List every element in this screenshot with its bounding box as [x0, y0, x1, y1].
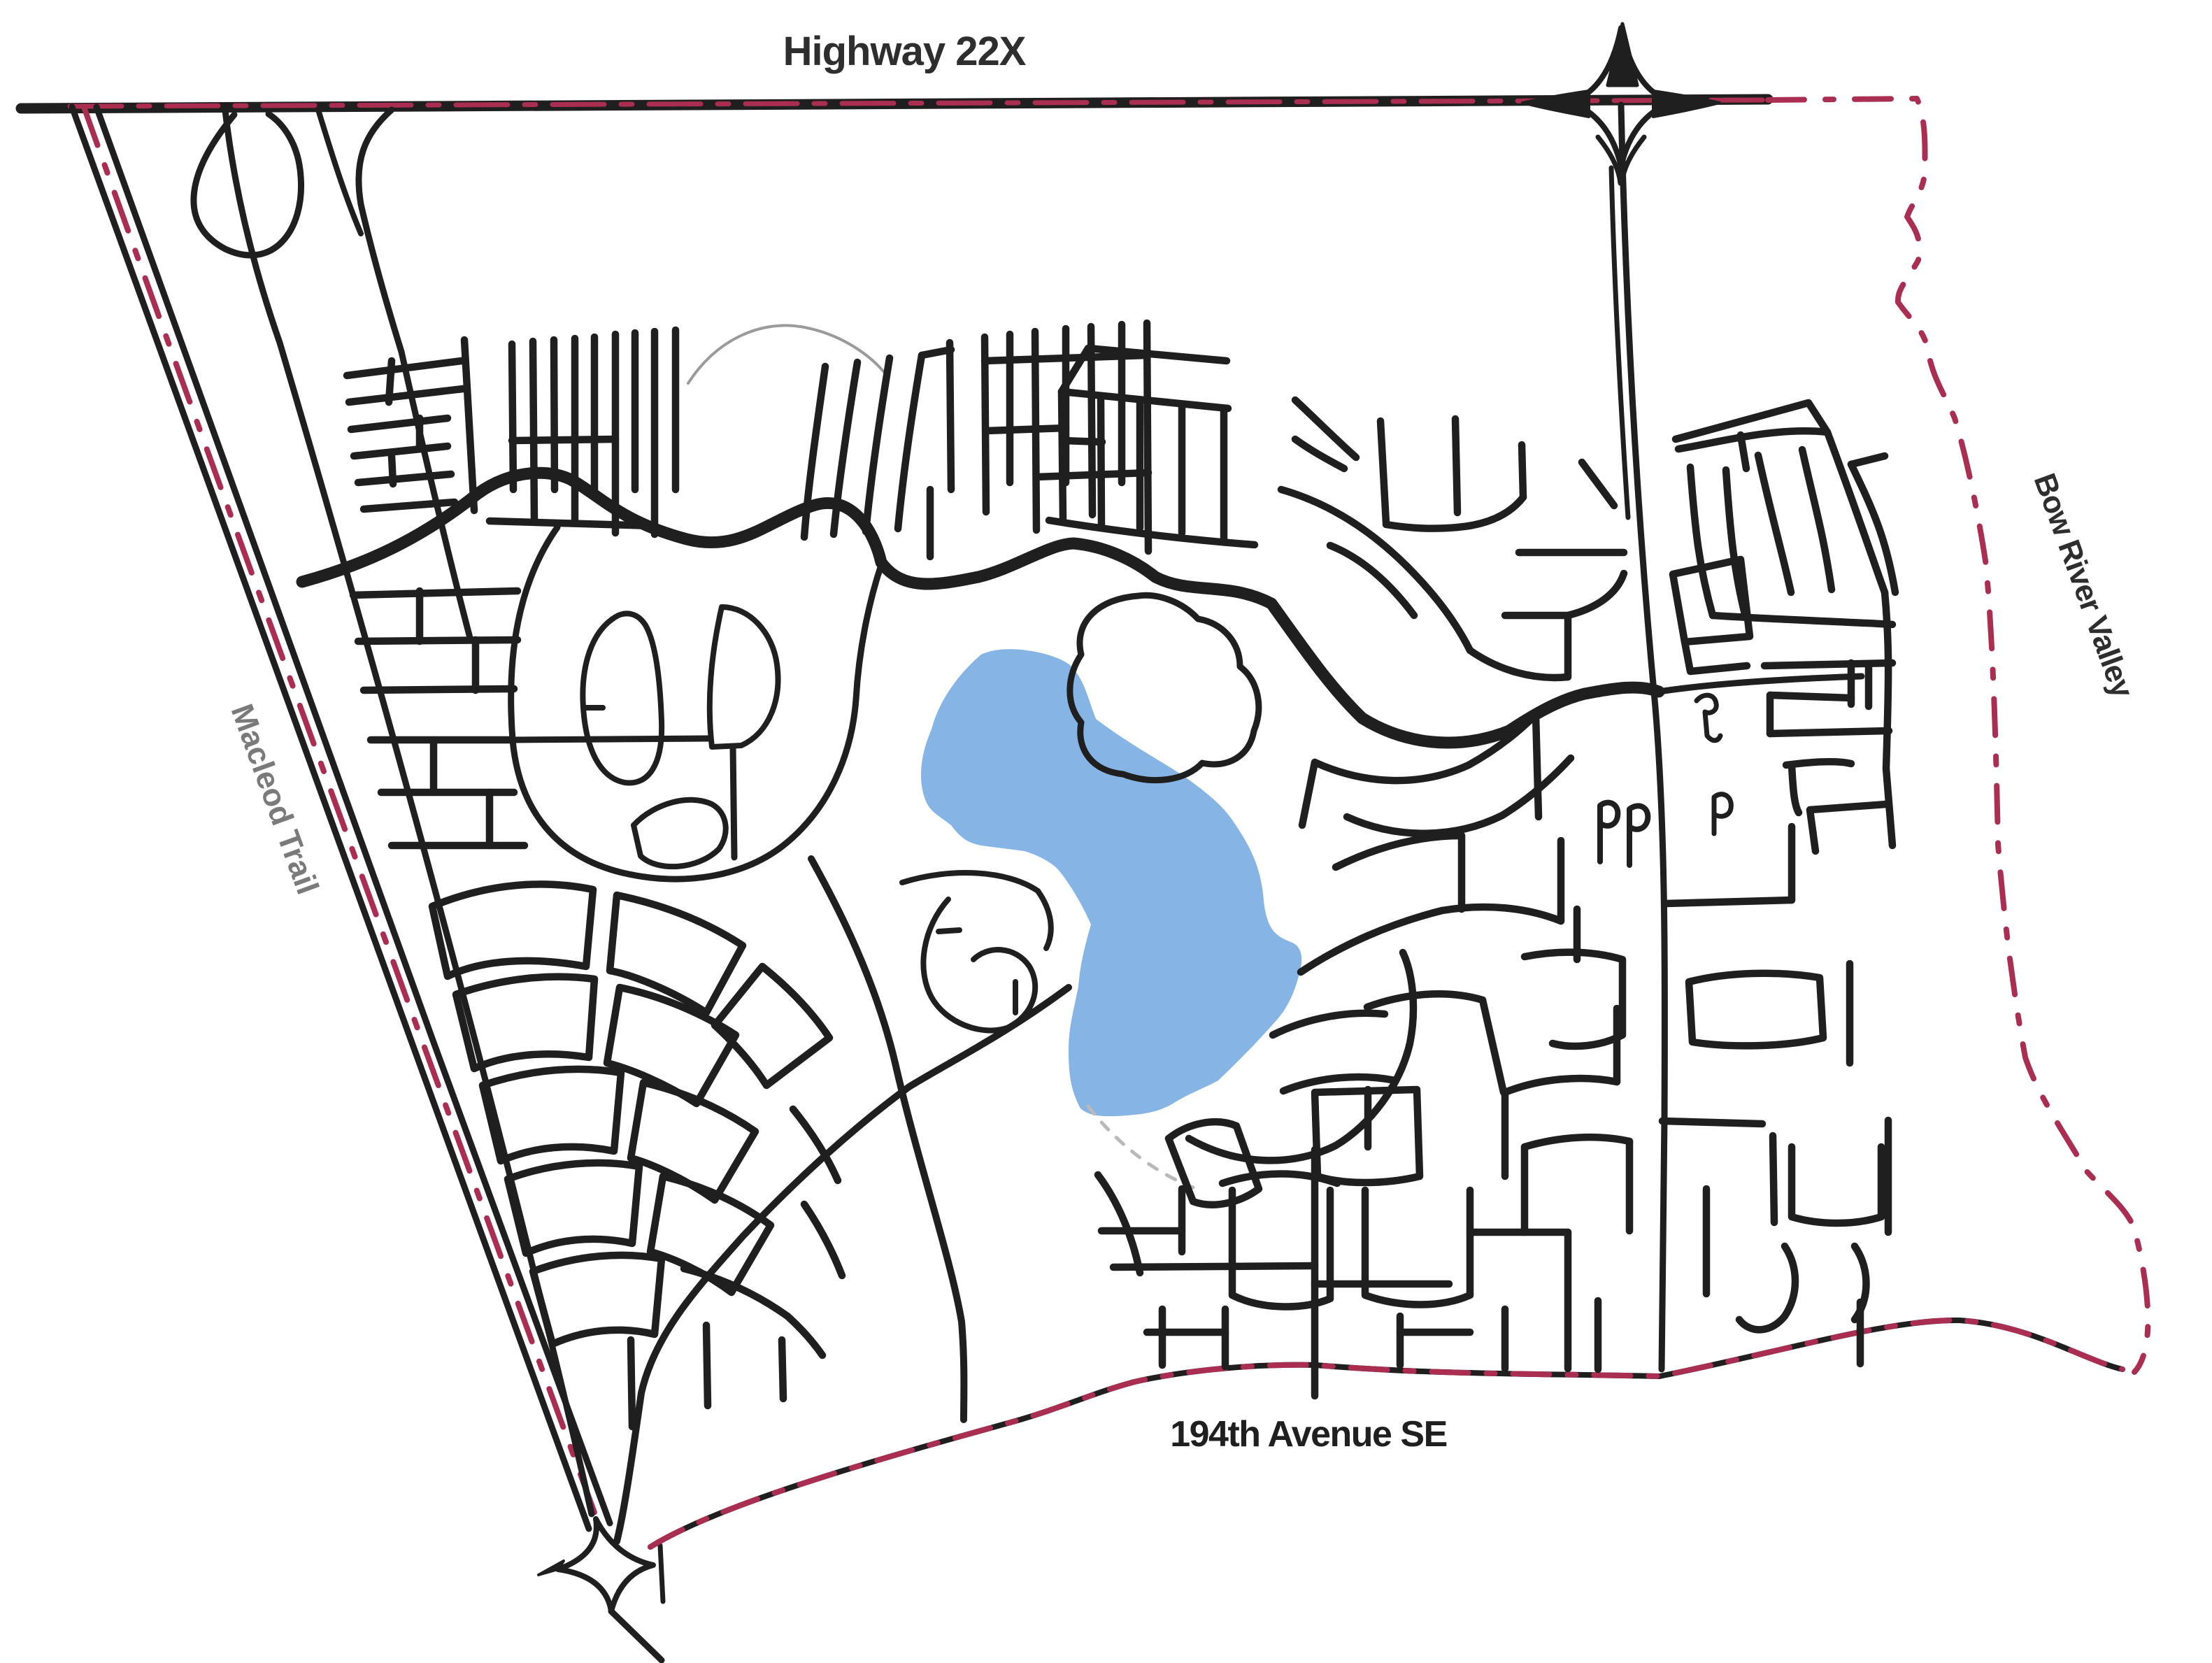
svg-text:Highway 22X: Highway 22X	[783, 29, 1027, 74]
svg-text:Bow River Valley: Bow River Valley	[2027, 469, 2141, 703]
svg-text:194th Avenue SE: 194th Avenue SE	[1170, 1414, 1447, 1455]
